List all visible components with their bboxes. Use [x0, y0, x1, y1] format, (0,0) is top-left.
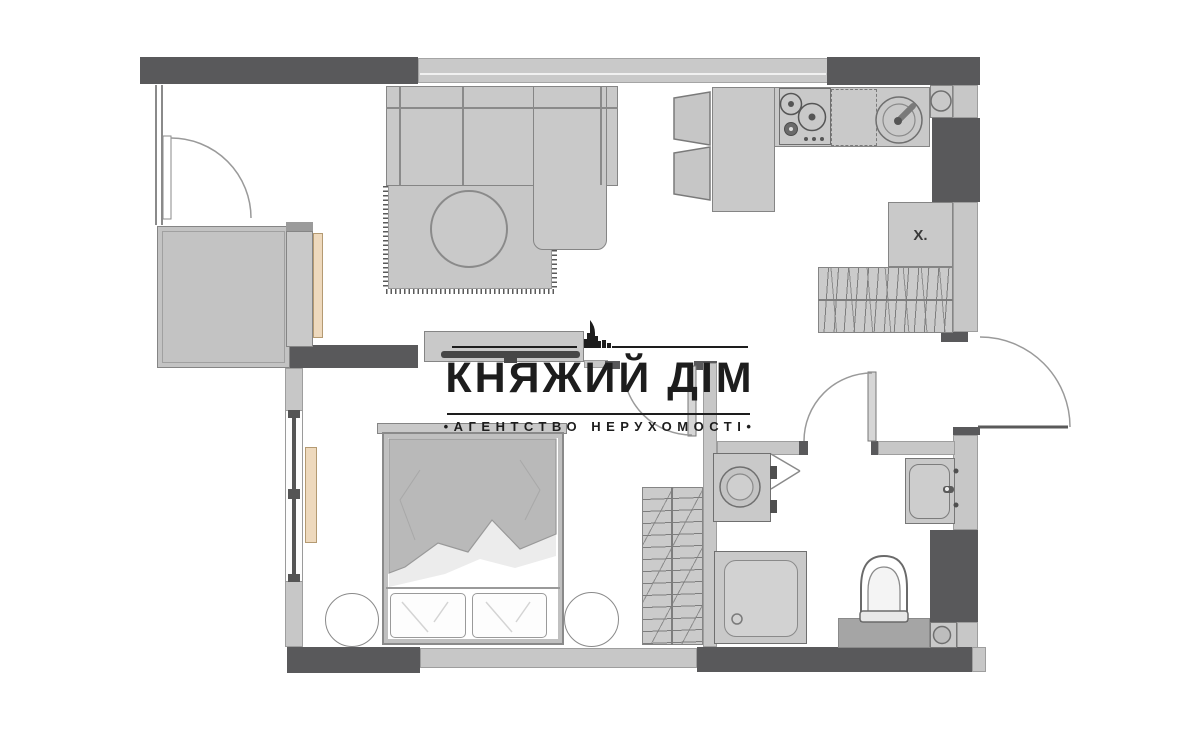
- hall-wardrobe-rail: [818, 299, 953, 301]
- radiator: [305, 447, 317, 543]
- fridge: Х.: [888, 202, 953, 267]
- wall-cap: [953, 427, 980, 435]
- sofa-arm-line: [600, 87, 602, 185]
- wall-cap: [286, 222, 313, 231]
- bathroom-door-leaf: [868, 372, 876, 441]
- building-icon: [582, 314, 612, 348]
- wall-segment: [957, 622, 978, 648]
- fridge-label: Х.: [889, 227, 952, 244]
- floor-plan: Х.: [0, 0, 1200, 749]
- pillow: [472, 593, 547, 638]
- entry-door-swing-arc: [171, 138, 251, 218]
- wall-segment: [932, 118, 980, 202]
- bedroom-wardrobe: [642, 487, 703, 645]
- wall-segment: [827, 57, 980, 85]
- counter-corner-module: [930, 85, 953, 118]
- wall-segment: [953, 85, 978, 118]
- wall-bedroom-divider: [287, 345, 418, 368]
- wall-segment: [972, 647, 986, 672]
- nightstand: [564, 592, 619, 647]
- stove: [779, 88, 831, 145]
- washer-hinge: [770, 466, 777, 479]
- sofa-arm-line: [399, 87, 401, 185]
- wall-segment: [287, 647, 420, 673]
- washing-machine: [713, 453, 771, 522]
- bedroom-wardrobe-rail: [671, 487, 673, 645]
- entry-door-leaf: [163, 136, 171, 219]
- wall-segment: [285, 368, 303, 412]
- wall-cap: [941, 332, 968, 342]
- window-mullion: [288, 489, 300, 499]
- rug-fringe-right: [552, 250, 557, 290]
- bathroom-door-swing-arc: [804, 373, 872, 441]
- wall-segment: [140, 57, 418, 84]
- window-band-top: [418, 58, 828, 83]
- wall-segment: [953, 435, 978, 530]
- toilet-ledge: [838, 618, 930, 648]
- bar-chair: [674, 92, 710, 145]
- pillow: [390, 593, 466, 638]
- logo-rule-left: [452, 346, 577, 348]
- kitchen-peninsula: [712, 87, 775, 212]
- dishwasher: [831, 89, 877, 146]
- wall-segment: [878, 441, 955, 455]
- rug-fringe-bottom: [386, 289, 554, 294]
- logo-divider: [447, 413, 750, 415]
- hallway-cabinet: [286, 231, 313, 347]
- wall-cap: [799, 441, 808, 455]
- washer-hinge: [770, 500, 777, 513]
- agency-title: КНЯЖИЙ ДІМ: [430, 354, 770, 403]
- wall-segment: [420, 648, 697, 668]
- drain-box: [930, 622, 957, 648]
- wall-segment: [285, 580, 303, 647]
- entrance-door-swing-arc: [980, 337, 1070, 427]
- rug-fringe-left: [383, 186, 388, 288]
- toilet: [861, 556, 907, 621]
- toilet-bowl: [868, 567, 900, 618]
- sofa-chaise: [533, 86, 607, 250]
- glass-partition: [155, 85, 163, 225]
- nightstand: [325, 593, 379, 647]
- shower-tray-inner: [724, 560, 798, 637]
- bar-chair: [674, 147, 710, 200]
- window-mullion: [288, 574, 300, 582]
- wall-segment: [697, 647, 972, 672]
- window-mullion: [288, 410, 300, 418]
- entry-closet-inner: [162, 231, 285, 363]
- duct-shaft: [930, 530, 978, 622]
- coffee-table: [430, 190, 508, 268]
- cabinet-wood-panel: [313, 233, 323, 338]
- window-band-line: [420, 73, 826, 75]
- bathroom-sink-basin: [909, 464, 950, 519]
- wall-segment: [953, 202, 978, 332]
- logo-rule-right: [612, 346, 748, 348]
- sofa-back-line: [386, 107, 618, 109]
- bed-frame-line: [386, 587, 560, 589]
- agency-watermark: КНЯЖИЙ ДІМ •АГЕНТСТВО НЕРУХОМОСТІ•: [430, 312, 770, 442]
- sofa-seam: [462, 87, 464, 185]
- agency-subtitle: •АГЕНТСТВО НЕРУХОМОСТІ•: [415, 419, 785, 434]
